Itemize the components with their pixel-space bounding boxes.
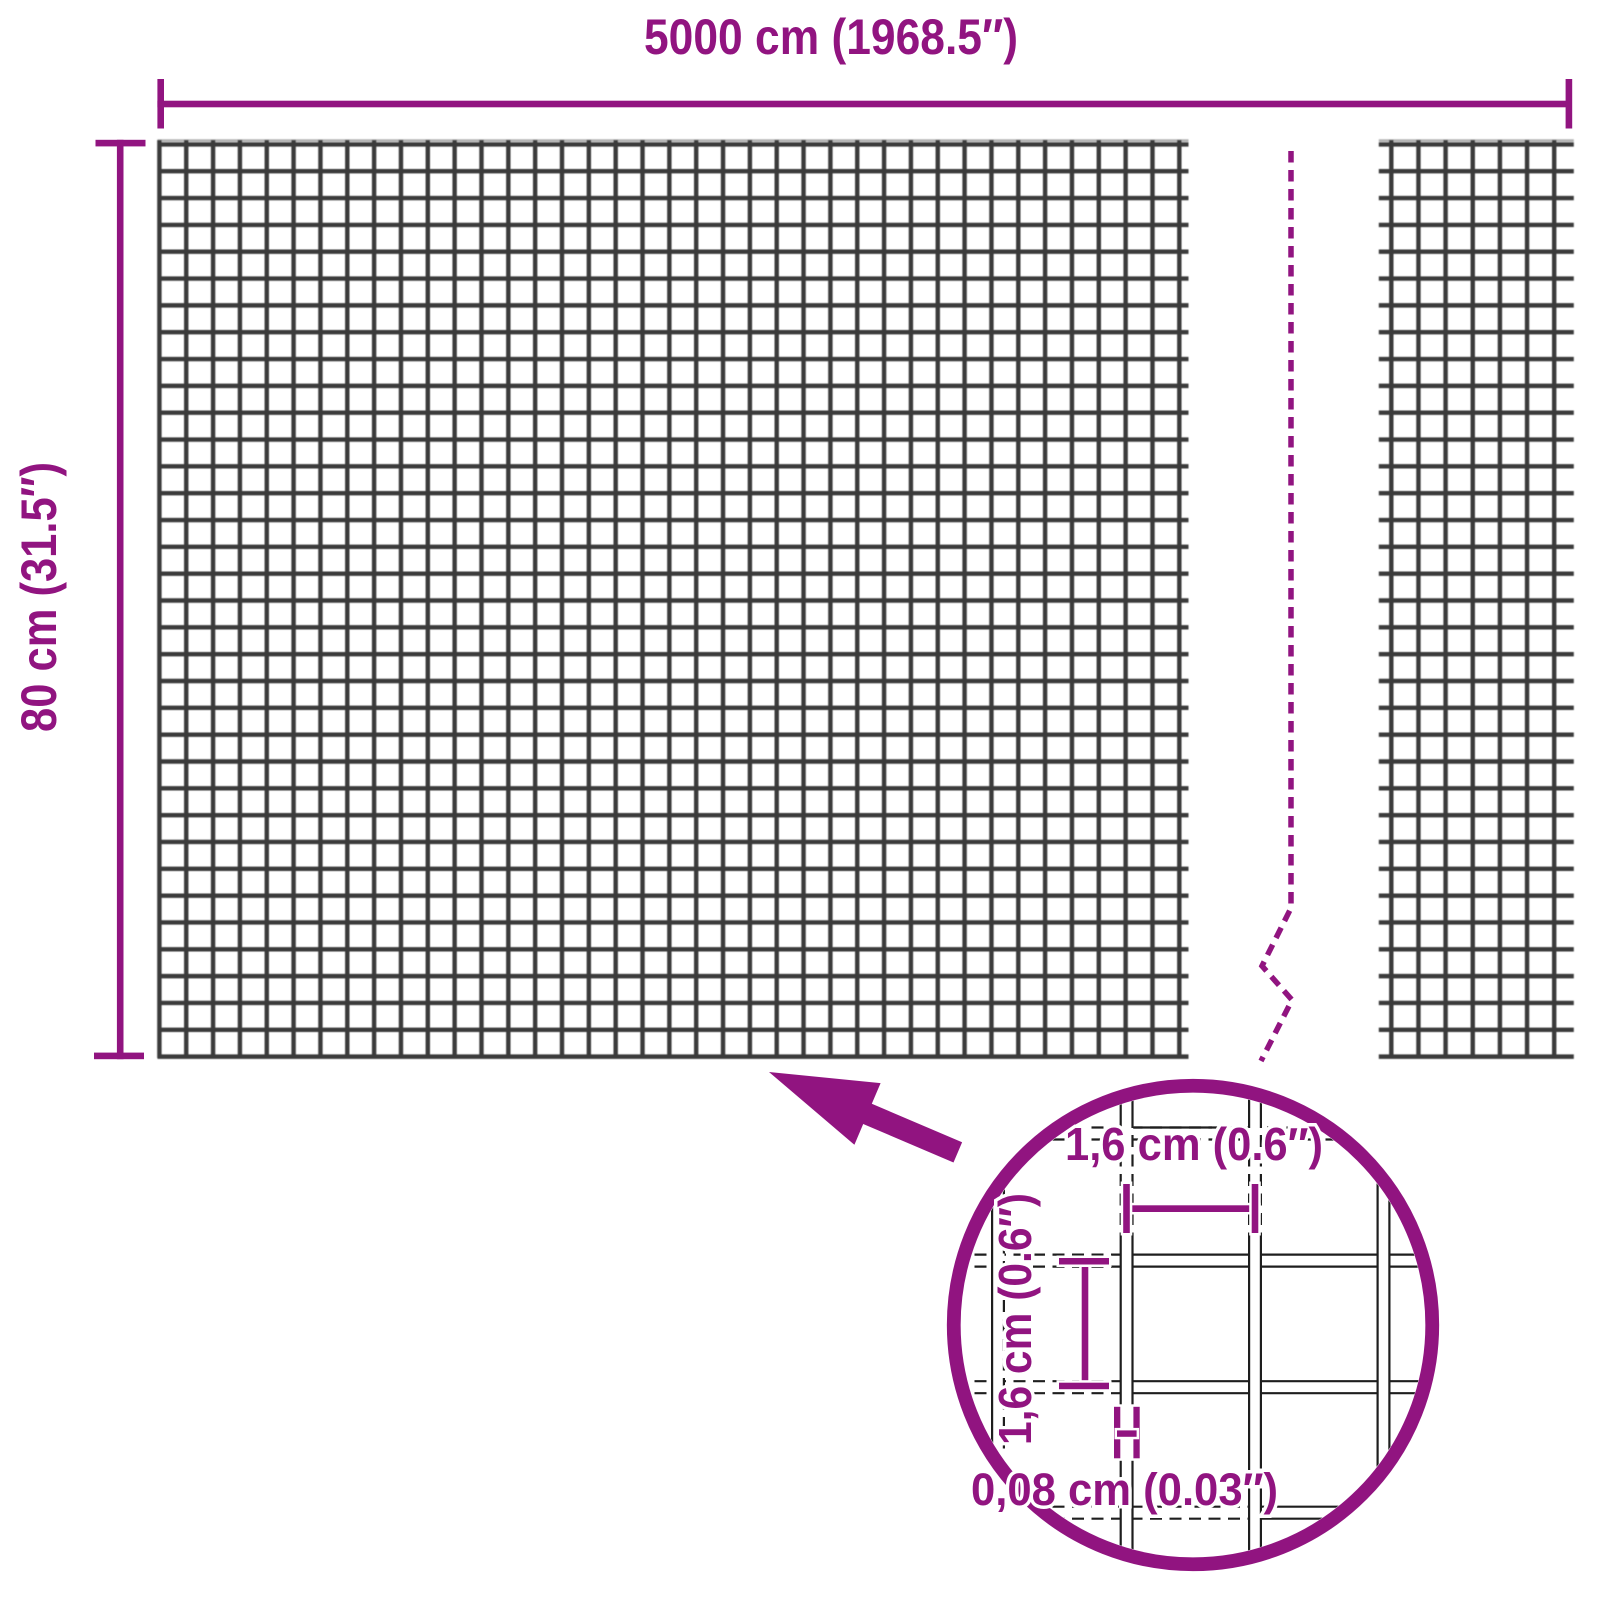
svg-text:1,6 cm (0.6″): 1,6 cm (0.6″) (1065, 1118, 1323, 1170)
svg-text:80 cm (31.5″): 80 cm (31.5″) (11, 462, 67, 732)
svg-text:1,6 cm (0.6″): 1,6 cm (0.6″) (989, 1193, 1041, 1445)
svg-text:0,08 cm (0.03″): 0,08 cm (0.03″) (971, 1464, 1278, 1515)
svg-text:5000 cm (1968.5″): 5000 cm (1968.5″) (644, 9, 1018, 65)
